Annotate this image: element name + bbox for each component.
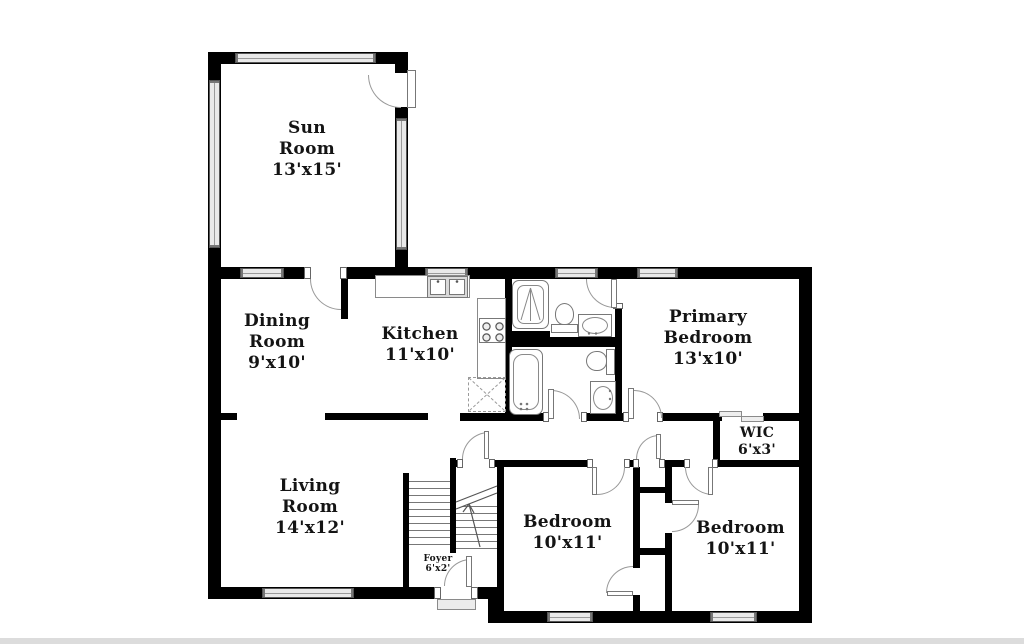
kitchen-sink-basin-left bbox=[430, 279, 446, 295]
jamb bbox=[304, 267, 311, 279]
room-dims: 9'x10' bbox=[217, 353, 337, 374]
window-bedroom2 bbox=[710, 612, 757, 622]
room-dims: 14'x12' bbox=[250, 518, 370, 539]
wall-closet-right-a bbox=[665, 467, 672, 503]
room-name: WIC bbox=[717, 425, 797, 442]
door-swing-primary-bedroom bbox=[634, 390, 662, 418]
jamb bbox=[659, 459, 665, 468]
door-swing-sunroom-exterior bbox=[368, 75, 401, 108]
room-name: Kitchen bbox=[365, 324, 475, 345]
front-stoop bbox=[437, 599, 476, 610]
room-name: Bedroom bbox=[510, 512, 625, 533]
door-leaf-primary-bedroom bbox=[628, 388, 634, 419]
front-door-opening bbox=[440, 587, 472, 599]
room-dims: 10'x11' bbox=[678, 539, 803, 560]
room-label-living-room: Living Room 14'x12' bbox=[250, 476, 370, 539]
door-swing-bedroom1 bbox=[597, 467, 625, 495]
stove bbox=[479, 318, 506, 343]
room-name: Primary Bedroom bbox=[661, 307, 755, 349]
door-leaf-closet-bedroom2 bbox=[672, 500, 699, 505]
shower-pan bbox=[517, 285, 544, 324]
door-leaf-stairs bbox=[484, 431, 489, 459]
door-leaf-hall-bath bbox=[548, 389, 554, 419]
room-dims: 13'x10' bbox=[633, 349, 783, 370]
window-sunroom-dining bbox=[240, 268, 284, 278]
door-leaf-closet-bedroom1 bbox=[607, 591, 633, 596]
jamb bbox=[581, 412, 587, 422]
wall-wic-top bbox=[763, 413, 799, 421]
wall-hall-bottom-c bbox=[497, 460, 592, 467]
door-leaf-sunroom-exterior bbox=[407, 70, 416, 108]
window-sunroom-top bbox=[235, 53, 376, 63]
room-name: Bedroom bbox=[683, 518, 798, 539]
door-swing-sunroom-dining bbox=[310, 279, 341, 310]
wall-main-right bbox=[799, 279, 812, 623]
room-dims: 13'x15' bbox=[257, 160, 357, 181]
wall-wic-bottom bbox=[713, 460, 799, 467]
window-sunroom-left bbox=[209, 80, 220, 248]
room-dims: 11'x10' bbox=[360, 345, 480, 366]
sink-basin-ensuite bbox=[582, 317, 608, 334]
wall-hall-top-b bbox=[582, 413, 628, 421]
bathtub-inner bbox=[513, 354, 539, 410]
wall-hall-top-c bbox=[658, 413, 722, 421]
wall-dining-living bbox=[325, 413, 428, 420]
jamb bbox=[633, 459, 639, 468]
window-living-room bbox=[262, 588, 354, 598]
room-label-bedroom2: Bedroom 10'x11' bbox=[678, 518, 803, 560]
room-name: Living Room bbox=[277, 476, 343, 518]
wall-closet-right-b bbox=[665, 533, 672, 611]
window-bathroom bbox=[555, 268, 598, 278]
wall-dining-living-stub bbox=[221, 413, 237, 420]
room-name: Foyer bbox=[411, 554, 465, 564]
toilet-tank-hall-bath bbox=[606, 349, 615, 375]
wall-between-baths-b bbox=[545, 337, 622, 347]
room-label-dining-room: Dining Room 9'x10' bbox=[217, 311, 337, 374]
sunroom-dining-opening bbox=[310, 267, 341, 279]
door-swing-closet-bedroom1 bbox=[606, 566, 633, 593]
stairs-down bbox=[456, 500, 497, 553]
room-label-wic: WIC 6'x3' bbox=[715, 425, 799, 459]
door-leaf-bedroom2 bbox=[708, 467, 713, 495]
room-label-primary-bedroom: Primary Bedroom 13'x10' bbox=[633, 307, 783, 370]
toilet-bowl-ensuite bbox=[555, 303, 574, 325]
floor-plan: Sun Room 13'x15' Dining Room 9'x10' Kitc… bbox=[0, 0, 1024, 644]
jamb bbox=[489, 459, 495, 468]
wall-bedroom-wing-bottom bbox=[488, 611, 812, 623]
toilet-bowl-hall-bath bbox=[586, 351, 607, 371]
door-swing-hall-bath bbox=[551, 390, 580, 419]
kitchen-sink-basin-right bbox=[449, 279, 465, 295]
jamb bbox=[340, 267, 347, 279]
room-label-sun-room: Sun Room 13'x15' bbox=[257, 118, 357, 181]
wall-closet-divider-1 bbox=[633, 487, 672, 493]
window-sunroom-right bbox=[396, 118, 407, 250]
room-label-kitchen: Kitchen 11'x10' bbox=[360, 324, 480, 366]
wall-dining-kitchen bbox=[341, 279, 348, 319]
sink-basin-hall-bath bbox=[593, 386, 613, 410]
wall-between-baths-a bbox=[505, 331, 550, 347]
wall-bath-primary bbox=[615, 308, 622, 413]
door-leaf-ensuite-bath bbox=[611, 279, 617, 308]
room-name: Dining Room bbox=[241, 311, 313, 353]
room-label-foyer: Foyer 6'x2' bbox=[410, 554, 466, 574]
bottom-edge-strip bbox=[0, 638, 1024, 644]
room-dims: 6'x3' bbox=[715, 442, 799, 459]
door-leaf-front-door bbox=[466, 556, 472, 587]
wall-closet-divider-2 bbox=[633, 548, 672, 555]
room-dims: 6'x2' bbox=[410, 564, 466, 574]
door-leaf-linen-closet bbox=[656, 434, 661, 459]
wall-bedroom1-left bbox=[497, 460, 504, 611]
window-primary-bedroom bbox=[637, 268, 678, 278]
jamb bbox=[434, 587, 441, 599]
jamb bbox=[457, 459, 463, 468]
wic-slider-panel-2 bbox=[741, 416, 764, 422]
door-leaf-bedroom1 bbox=[592, 467, 597, 495]
window-bedroom1 bbox=[547, 612, 593, 622]
wall-main-top bbox=[208, 267, 812, 279]
stairs-up bbox=[409, 475, 450, 548]
toilet-tank-ensuite bbox=[551, 324, 578, 333]
wic-slider-panel-1 bbox=[719, 411, 742, 417]
jamb bbox=[471, 587, 478, 599]
appliance-space-dashed bbox=[468, 377, 506, 412]
wall-closet-left-b bbox=[633, 595, 640, 611]
room-label-bedroom1: Bedroom 10'x11' bbox=[505, 512, 630, 554]
room-dims: 10'x11' bbox=[505, 533, 630, 554]
room-name: Sun Room bbox=[279, 118, 335, 160]
